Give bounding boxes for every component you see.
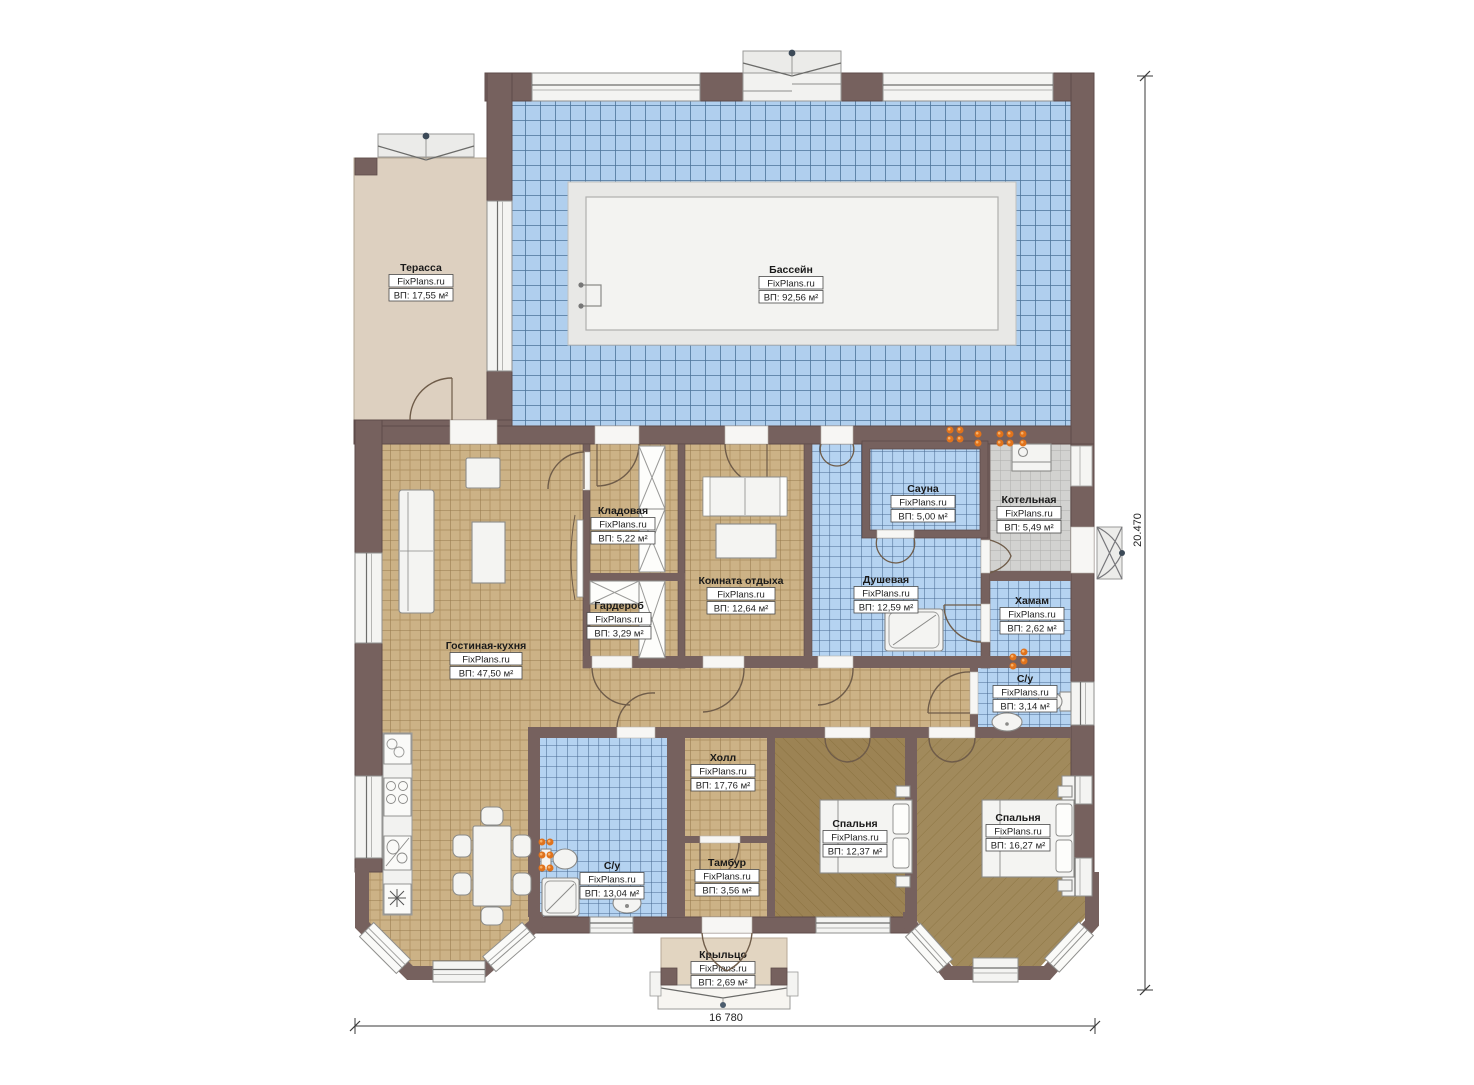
svg-text:FixPlans.ru: FixPlans.ru — [717, 590, 765, 601]
svg-text:Гардероб: Гардероб — [594, 600, 644, 612]
svg-text:Спальня: Спальня — [832, 818, 877, 830]
svg-text:ВП: 12,64 м²: ВП: 12,64 м² — [714, 604, 769, 615]
svg-text:Тамбур: Тамбур — [708, 857, 746, 869]
svg-text:ВП: 5,49 м²: ВП: 5,49 м² — [1004, 523, 1053, 534]
svg-text:Терасса: Терасса — [400, 262, 442, 274]
svg-text:FixPlans.ru: FixPlans.ru — [1001, 688, 1049, 699]
svg-text:Хамам: Хамам — [1015, 595, 1049, 607]
svg-text:FixPlans.ru: FixPlans.ru — [699, 767, 747, 778]
svg-text:FixPlans.ru: FixPlans.ru — [831, 833, 879, 844]
svg-text:ВП: 3,29 м²: ВП: 3,29 м² — [594, 629, 643, 640]
svg-text:С/у: С/у — [604, 860, 621, 872]
svg-text:ВП: 2,69 м²: ВП: 2,69 м² — [698, 978, 747, 989]
svg-text:FixPlans.ru: FixPlans.ru — [899, 498, 947, 509]
svg-text:С/у: С/у — [1017, 673, 1034, 685]
svg-text:ВП: 17,76 м²: ВП: 17,76 м² — [696, 781, 751, 792]
svg-text:FixPlans.ru: FixPlans.ru — [397, 277, 445, 288]
svg-text:FixPlans.ru: FixPlans.ru — [595, 615, 643, 626]
svg-text:FixPlans.ru: FixPlans.ru — [462, 655, 510, 666]
svg-text:Гостиная-кухня: Гостиная-кухня — [446, 640, 526, 652]
svg-text:ВП: 92,56 м²: ВП: 92,56 м² — [764, 293, 819, 304]
svg-text:FixPlans.ru: FixPlans.ru — [703, 872, 751, 883]
svg-text:ВП: 2,62 м²: ВП: 2,62 м² — [1007, 624, 1056, 635]
svg-text:FixPlans.ru: FixPlans.ru — [588, 875, 636, 886]
svg-text:ВП: 3,56 м²: ВП: 3,56 м² — [702, 886, 751, 897]
svg-text:ВП: 17,55 м²: ВП: 17,55 м² — [394, 291, 449, 302]
svg-text:Котельная: Котельная — [1002, 494, 1057, 506]
svg-text:ВП: 5,00 м²: ВП: 5,00 м² — [898, 512, 947, 523]
svg-text:FixPlans.ru: FixPlans.ru — [599, 520, 647, 531]
svg-text:ВП: 3,14 м²: ВП: 3,14 м² — [1000, 702, 1049, 713]
svg-text:Спальня: Спальня — [995, 812, 1040, 824]
svg-text:Комната отдыха: Комната отдыха — [699, 575, 784, 587]
svg-text:20.470: 20.470 — [1132, 513, 1144, 547]
svg-text:FixPlans.ru: FixPlans.ru — [767, 279, 815, 290]
svg-text:ВП: 5,22 м²: ВП: 5,22 м² — [598, 534, 647, 545]
svg-text:Кладовая: Кладовая — [598, 505, 648, 517]
svg-text:FixPlans.ru: FixPlans.ru — [1008, 610, 1056, 621]
svg-text:Бассейн: Бассейн — [769, 264, 813, 276]
svg-text:ВП: 47,50 м²: ВП: 47,50 м² — [459, 669, 514, 680]
svg-text:FixPlans.ru: FixPlans.ru — [1005, 509, 1053, 520]
svg-text:FixPlans.ru: FixPlans.ru — [994, 827, 1042, 838]
svg-text:Душевая: Душевая — [863, 574, 909, 586]
svg-text:ВП: 16,27 м²: ВП: 16,27 м² — [991, 841, 1046, 852]
svg-text:Сауна: Сауна — [907, 483, 939, 495]
svg-text:Холл: Холл — [710, 752, 736, 764]
svg-text:16 780: 16 780 — [709, 1012, 743, 1024]
svg-text:ВП: 13,04 м²: ВП: 13,04 м² — [585, 889, 640, 900]
svg-text:ВП: 12,59 м²: ВП: 12,59 м² — [859, 603, 914, 614]
svg-text:FixPlans.ru: FixPlans.ru — [862, 589, 910, 600]
svg-text:ВП: 12,37 м²: ВП: 12,37 м² — [828, 847, 883, 858]
